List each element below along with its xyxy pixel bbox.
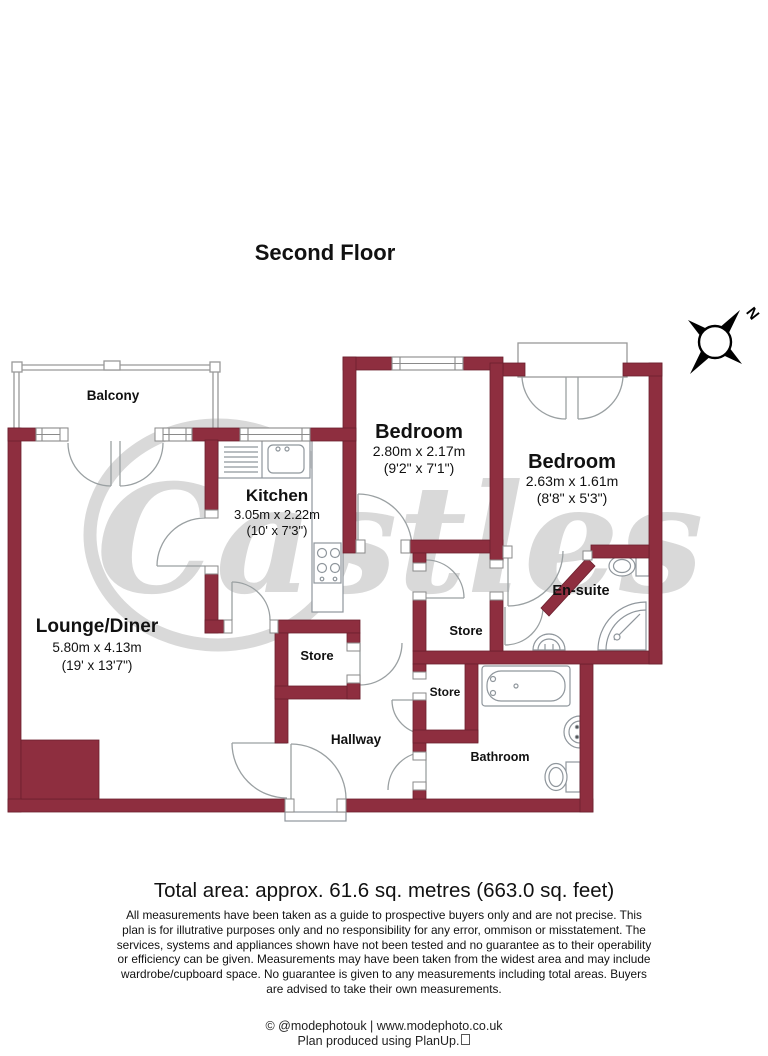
entrance-threshold <box>285 812 346 821</box>
compass-north-label: N <box>742 304 762 323</box>
floorplan-page: Castles <box>0 0 768 1056</box>
footer-produced-text: Plan produced using PlanUp. <box>298 1034 460 1048</box>
ensuite-toilet <box>609 556 649 576</box>
bathroom-toilet <box>545 762 580 792</box>
store-left-label: Store <box>300 649 333 663</box>
lounge-label: Lounge/Diner <box>36 617 158 638</box>
bedroom2-dim-imperial: (8'8" x 5'3") <box>537 491 608 506</box>
kitchen-dim-imperial: (10' x 7'3") <box>247 524 308 538</box>
lounge-window-right <box>163 428 192 441</box>
kitchen-label: Kitchen <box>246 487 308 506</box>
wardrobe-recess <box>518 343 627 377</box>
bedroom1-label: Bedroom <box>375 421 463 443</box>
lounge-dim-metric: 5.80m x 4.13m <box>52 641 141 656</box>
disclaimer-text: All measurements have been taken as a gu… <box>114 908 654 997</box>
store-small-label: Store <box>430 686 461 699</box>
bedroom1-dim-metric: 2.80m x 2.17m <box>373 444 466 459</box>
lounge-solid-block <box>21 740 99 799</box>
kitchen-sink-unit <box>218 440 310 478</box>
bedroom2-dim-metric: 2.63m x 1.61m <box>526 474 619 489</box>
bathtub <box>482 666 570 706</box>
kitchen-counter <box>312 440 343 612</box>
store-mid-label: Store <box>449 624 482 638</box>
bedroom1-dim-imperial: (9'2" x 7'1") <box>384 461 455 476</box>
hallway-label: Hallway <box>331 733 381 748</box>
bathroom-label: Bathroom <box>470 751 529 765</box>
bathroom-sink <box>564 716 580 748</box>
bedroom2-label: Bedroom <box>528 451 616 473</box>
footer-credit: © @modephotouk | www.modephoto.co.uk <box>0 1019 768 1033</box>
bedroom1-window <box>392 357 463 370</box>
missing-glyph-box <box>461 1034 470 1045</box>
page-title: Second Floor <box>255 240 396 266</box>
ensuite-sink <box>533 634 565 650</box>
kitchen-dim-metric: 3.05m x 2.22m <box>234 508 320 522</box>
kitchen-window <box>240 428 310 441</box>
footer-produced: Plan produced using PlanUp. <box>0 1034 768 1048</box>
balcony-label: Balcony <box>87 389 140 404</box>
ensuite-label: En-suite <box>552 584 609 600</box>
total-area-text: Total area: approx. 61.6 sq. metres (663… <box>0 879 768 903</box>
compass-rose: N <box>688 304 762 374</box>
lounge-dim-imperial: (19' x 13'7") <box>62 659 133 674</box>
